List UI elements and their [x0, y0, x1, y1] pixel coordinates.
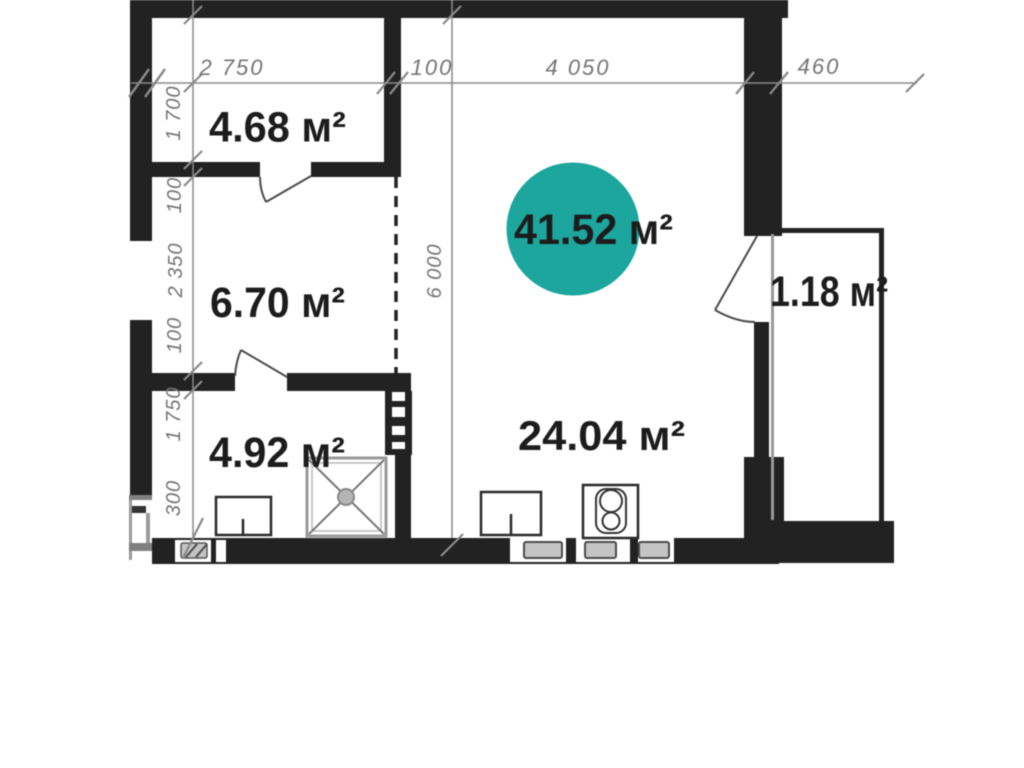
svg-text:4 050: 4 050 [545, 55, 610, 80]
svg-text:41.52 м²: 41.52 м² [514, 206, 673, 254]
svg-text:6 000: 6 000 [424, 243, 446, 298]
svg-text:24.04 м²: 24.04 м² [518, 412, 685, 459]
svg-text:6.70 м²: 6.70 м² [210, 279, 345, 327]
svg-text:4.68 м²: 4.68 м² [209, 104, 346, 152]
svg-text:1 750: 1 750 [163, 386, 185, 441]
svg-text:460: 460 [798, 54, 841, 79]
svg-text:1.18 м²: 1.18 м² [770, 268, 888, 316]
svg-text:300: 300 [163, 480, 185, 516]
svg-text:100: 100 [164, 177, 186, 213]
svg-text:4.92 м²: 4.92 м² [209, 429, 345, 477]
svg-text:1 700: 1 700 [163, 85, 185, 140]
svg-text:100: 100 [164, 317, 186, 353]
svg-text:2 350: 2 350 [165, 242, 187, 298]
svg-text:100: 100 [411, 55, 454, 80]
svg-text:2 750: 2 750 [198, 55, 264, 80]
